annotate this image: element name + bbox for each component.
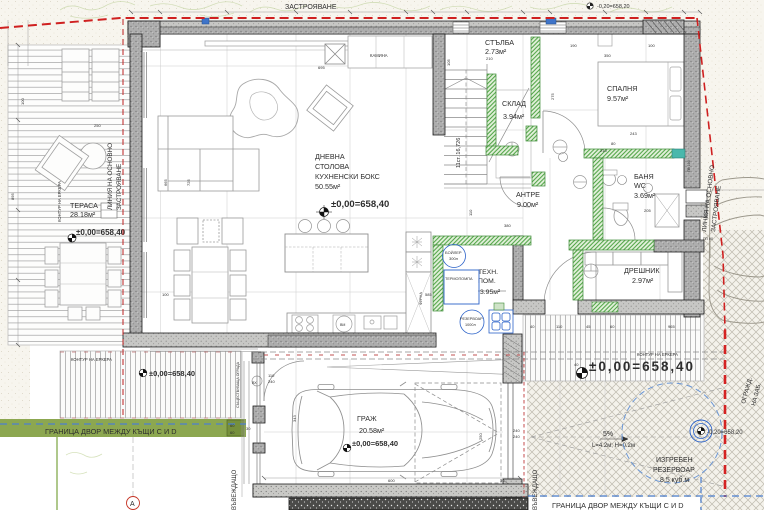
- svg-text:ВХ: ВХ: [252, 381, 257, 385]
- svg-text:ТЕХН.: ТЕХН.: [478, 269, 498, 276]
- svg-text:9.00м²: 9.00м²: [517, 200, 539, 209]
- svg-text:60: 60: [610, 324, 615, 329]
- svg-text:ВЪВЕЖДАЩО: ВЪВЕЖДАЩО: [533, 469, 539, 510]
- svg-text:РЕЗЕРВОАР: РЕЗЕРВОАР: [653, 467, 695, 474]
- svg-text:105: 105: [446, 59, 451, 66]
- svg-text:ПОМ.: ПОМ.: [478, 278, 496, 285]
- svg-text:ГРАНИЦА ДВОР МЕЖДУ КЪЩИ С И D: ГРАНИЦА ДВОР МЕЖДУ КЪЩИ С И D: [552, 501, 684, 510]
- svg-text:ВЪВЕЖДАЩО: ВЪВЕЖДАЩО: [232, 469, 238, 510]
- svg-text:250: 250: [478, 433, 483, 440]
- svg-text:БАНЯ: БАНЯ: [634, 172, 654, 181]
- svg-text:ВМ: ВМ: [340, 323, 345, 327]
- svg-text:350: 350: [604, 53, 611, 58]
- svg-text:ГРАЖ: ГРАЖ: [357, 414, 377, 423]
- svg-text:965: 965: [668, 324, 675, 329]
- svg-text:250: 250: [94, 123, 101, 128]
- svg-text:110: 110: [468, 209, 473, 216]
- svg-text:210: 210: [600, 148, 607, 153]
- svg-text:КОНТУР НА ЕРКЕРА: КОНТУР НА ЕРКЕРА: [637, 352, 678, 357]
- svg-text:205: 205: [644, 208, 651, 213]
- svg-text:585: 585: [425, 292, 432, 297]
- svg-text:КАМИНА: КАМИНА: [370, 53, 388, 58]
- svg-text:50.55м²: 50.55м²: [315, 182, 341, 191]
- svg-text:±0,00=658,40: ±0,00=658,40: [331, 199, 389, 210]
- svg-text:ЗАСТРОЯВАНЕ: ЗАСТРОЯВАНЕ: [285, 4, 337, 11]
- svg-text:11ст. 16,726: 11ст. 16,726: [456, 138, 462, 168]
- svg-text:АНТРЕ: АНТРЕ: [516, 190, 540, 199]
- svg-text:695: 695: [318, 65, 325, 70]
- svg-text:240: 240: [513, 434, 520, 439]
- svg-text:ТЕРМОПОМПА: ТЕРМОПОМПА: [445, 277, 473, 281]
- svg-text:275: 275: [550, 93, 555, 100]
- svg-text:665: 665: [163, 179, 168, 186]
- svg-text:БОЙЛЕР: БОЙЛЕР: [445, 250, 462, 255]
- svg-text:СКЛАД: СКЛАД: [502, 99, 526, 108]
- svg-text:ФУРНА: ФУРНА: [419, 292, 423, 305]
- svg-text:3.69м²: 3.69м²: [634, 191, 656, 200]
- svg-text:-0,20=658,20: -0,20=658,20: [707, 430, 743, 436]
- svg-text:РЕЗЕРВОАР: РЕЗЕРВОАР: [460, 317, 483, 321]
- svg-text:1000л: 1000л: [465, 323, 476, 327]
- svg-text:-0,20=658,20: -0,20=658,20: [597, 4, 630, 10]
- svg-text:СПАЛНЯ: СПАЛНЯ: [607, 84, 637, 93]
- svg-text:ДНЕВНА: ДНЕВНА: [315, 152, 345, 161]
- svg-text:45: 45: [586, 324, 591, 329]
- svg-text:895: 895: [10, 193, 15, 200]
- svg-text:9.57м²: 9.57м²: [607, 94, 629, 103]
- svg-text:3.95м²: 3.95м²: [480, 289, 501, 296]
- svg-text:80: 80: [611, 141, 616, 146]
- svg-text:±0,00=658,40: ±0,00=658,40: [149, 369, 195, 378]
- svg-text:ДРЕШНИК: ДРЕШНИК: [624, 266, 660, 275]
- svg-text:±0,00=658,40: ±0,00=658,40: [352, 439, 398, 448]
- svg-text:600: 600: [388, 478, 395, 483]
- svg-text:СЪЩЕСТВУВАЩА ОГРАДА: СЪЩЕСТВУВАЩА ОГРАДА: [236, 361, 240, 408]
- svg-text:2.97м²: 2.97м²: [632, 276, 654, 285]
- svg-text:КУХНЕНСКИ БОКС: КУХНЕНСКИ БОКС: [315, 172, 380, 181]
- svg-text:100: 100: [648, 43, 655, 48]
- svg-text:210: 210: [486, 56, 493, 61]
- svg-text:СТОЛОВА: СТОЛОВА: [315, 162, 349, 171]
- svg-text:ИЗГРЕБЕН: ИЗГРЕБЕН: [656, 457, 693, 464]
- svg-text:3.94м²: 3.94м²: [503, 112, 525, 121]
- svg-text:60: 60: [230, 423, 235, 428]
- svg-text:343: 343: [292, 415, 297, 422]
- svg-text:КОНТУР НА ЕРКЕРА: КОНТУР НА ЕРКЕРА: [57, 181, 62, 222]
- svg-text:ГРАНИЦА ДВОР МЕЖДУ КЪЩИ С И D: ГРАНИЦА ДВОР МЕЖДУ КЪЩИ С И D: [45, 427, 177, 436]
- svg-text:ПП 60: ПП 60: [703, 237, 713, 241]
- svg-text:60: 60: [230, 430, 235, 435]
- svg-text:20.58м²: 20.58м²: [359, 426, 385, 435]
- svg-text:190: 190: [570, 43, 577, 48]
- svg-text:ПВ 100: ПВ 100: [687, 160, 691, 172]
- svg-text:240: 240: [268, 379, 275, 384]
- svg-text:28.18м²: 28.18м²: [70, 210, 96, 219]
- svg-text:243: 243: [630, 131, 637, 136]
- svg-text:240: 240: [513, 428, 520, 433]
- svg-text:380: 380: [504, 223, 511, 228]
- svg-text:30: 30: [246, 426, 251, 431]
- svg-text:40: 40: [530, 324, 535, 329]
- svg-text:ЗАСТРОЯВАНЕ: ЗАСТРОЯВАНЕ: [116, 164, 123, 210]
- svg-text:30: 30: [500, 478, 505, 483]
- svg-text:100: 100: [20, 98, 25, 105]
- svg-text:L=4.2м; Н=0.2м: L=4.2м; Н=0.2м: [592, 443, 635, 449]
- svg-text:40: 40: [574, 362, 579, 367]
- svg-text:8,5 куб.м: 8,5 куб.м: [660, 476, 689, 484]
- svg-text:ЛИНИЯ НА ОСНОВНО: ЛИНИЯ НА ОСНОВНО: [107, 143, 114, 210]
- svg-text:СТЪЛБА: СТЪЛБА: [485, 38, 514, 47]
- svg-text:ТЕРАСА: ТЕРАСА: [70, 201, 98, 210]
- svg-text:5%: 5%: [603, 431, 613, 438]
- svg-text:А: А: [130, 501, 135, 508]
- svg-text:300л: 300л: [449, 256, 459, 261]
- svg-text:110: 110: [268, 373, 275, 378]
- svg-text:±0,00=658,40: ±0,00=658,40: [76, 228, 126, 237]
- svg-text:110: 110: [556, 324, 563, 329]
- svg-text:КОНТУР НА ЕРКЕРА: КОНТУР НА ЕРКЕРА: [71, 357, 112, 362]
- svg-text:725: 725: [186, 179, 191, 186]
- svg-text:100: 100: [162, 292, 169, 297]
- svg-text:2.73м²: 2.73м²: [485, 47, 507, 56]
